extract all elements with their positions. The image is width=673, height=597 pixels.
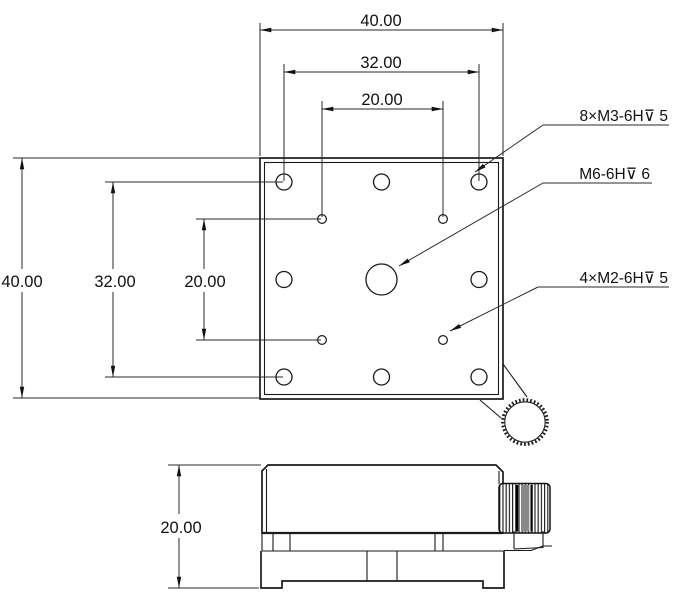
dim-label-left-40: 40.00: [1, 273, 42, 291]
dimensions-left: 40.00 32.00 20.00: [1, 158, 321, 398]
leader-line-m2: [450, 287, 538, 331]
base-outline: [261, 551, 504, 588]
side-view: [261, 465, 552, 588]
m3-hole-pattern: [276, 174, 487, 385]
dim-label-side-20: 20.00: [160, 519, 201, 537]
technical-drawing: 40.00 32.00 20.00 40.00 32.00 20.00 8×M3…: [0, 0, 673, 597]
knob-shading-band: [521, 485, 529, 532]
m6-center-hole: [366, 264, 397, 295]
leader-line-m6: [399, 183, 543, 266]
m3-hole-mid-left: [276, 272, 292, 288]
knob-bracket: [504, 531, 552, 551]
knob-tangent-line-upper: [503, 364, 527, 397]
callout-m3-label: 8×M3-6H⊽ 5: [580, 108, 668, 125]
dimensions-top: 40.00 32.00 20.00: [260, 12, 503, 217]
knurled-knob-side: [499, 484, 550, 534]
dim-label-top-32: 32.00: [360, 54, 401, 72]
dim-label-top-40: 40.00: [360, 12, 401, 30]
hole-callouts: 8×M3-6H⊽ 5 M6-6H⊽ 6 4×M2-6H⊽ 5: [399, 108, 669, 331]
dim-label-left-32: 32.00: [94, 273, 135, 291]
dim-label-top-20: 20.00: [361, 91, 402, 109]
callout-m6-label: M6-6H⊽ 6: [579, 166, 650, 183]
m3-hole-top-center: [374, 174, 390, 190]
plate-outline-inner: [265, 163, 499, 395]
m2-hole-pattern: [318, 215, 448, 345]
dimensions-side: 20.00: [160, 465, 261, 588]
m3-hole-bottom-right: [471, 369, 487, 385]
knurled-knob-top: [480, 364, 547, 444]
knob-dark-stripe: [531, 485, 533, 532]
plate-outline-outer: [260, 158, 503, 399]
top-view: [260, 158, 547, 444]
dim-label-left-20: 20.00: [184, 273, 225, 291]
leader-line-m3: [475, 125, 543, 172]
knob-knurl-teeth: [503, 400, 548, 445]
knob-dark-stripe: [516, 485, 518, 532]
knob-inner-circle: [505, 402, 545, 442]
body-top-section: [262, 465, 503, 533]
callout-m2-label: 4×M2-6H⊽ 5: [580, 270, 668, 287]
m2-hole-bottom-right: [439, 336, 448, 345]
knob-tangent-line-lower: [480, 400, 501, 418]
m3-hole-mid-right: [471, 272, 487, 288]
m3-hole-bottom-center: [374, 369, 390, 385]
cad-drawing-canvas: 40.00 32.00 20.00 40.00 32.00 20.00 8×M3…: [0, 0, 673, 597]
